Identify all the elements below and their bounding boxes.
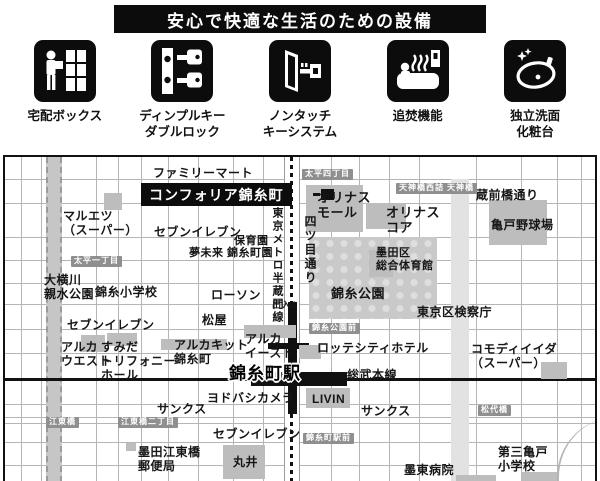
map-badge-label: 錦糸公園前 [309,323,360,334]
map-place-label: コモディイイダ （スーパー） [471,342,557,370]
map-place-label: 東京区検察庁 [417,305,492,319]
map-vertical-label: 四ツ目通り [302,215,319,285]
building-block [126,443,136,451]
map-place-label: セブンイレブン [213,427,301,441]
amenity-label: 追焚機能 [359,109,477,125]
metro-line-dotted [290,157,293,304]
amenity-section: 安心で快適な生活のための設備 宅配ボックス [0,5,600,155]
amenity-dimple-key: ディンプルキー ダブルロック [124,40,242,140]
map-place-label: オリナス モール [317,190,371,221]
map-place-label: ローソン [211,288,261,302]
map-place-label: 丸井 [233,455,258,469]
map-place-label: 第三亀戸 小学校 [498,445,548,473]
map-place-label: ヨドバシカメラ [207,391,295,405]
reheating-icon [387,40,449,102]
road-line-vertical [557,157,558,481]
yokojikken-river-strip [451,179,469,481]
curved-road [557,417,597,481]
map-panel: コンフォリア錦糸町 錦糸町駅 ファミリーマートマルエツ （スーパー）セブンイレブ… [3,155,597,481]
road-line-horizontal [5,304,595,305]
map-place-label: 松屋 [202,313,227,327]
amenity-reheating: 追焚機能 [359,40,477,140]
metro-line-dotted [290,414,293,481]
map-place-label: 総武本線 [347,368,397,382]
map-place-label: 大横川 親水公園 [44,273,94,301]
washbasin-icon [504,40,566,102]
map-place-label: 亀戸野球場 [491,218,554,232]
section-title: 安心で快適な生活のための設備 [167,7,433,32]
building-block [521,472,557,481]
road-line-horizontal [5,423,595,424]
map-place-label: マルエツ （スーパー） [63,209,138,237]
map-badge-label: 江東橋二丁目 [118,417,178,428]
amenity-row: 宅配ボックス ディンプルキー ダブルロック [0,40,600,140]
road-line-horizontal [5,417,595,418]
map-place-label: 墨田区 総合体育館 [376,247,434,273]
map-badge-label: 錦糸町駅前 [303,433,354,444]
amenity-nontouch-key: ノンタッチ キーシステム [241,40,359,140]
map-place-label: 墨田江東橋 郵便局 [138,445,201,473]
building-block [104,193,122,210]
amenity-label: ノンタッチ キーシステム [241,109,359,140]
amenity-delivery-box: 宅配ボックス [6,40,124,140]
section-title-banner: 安心で快適な生活のための設備 [114,5,486,33]
map-place-label: オリナス コア [386,205,440,236]
map-badge-label: 太平四丁目 [302,169,353,180]
road-line-horizontal [5,179,595,180]
map-vertical-label: 東京メトロ半蔵門線 [269,207,285,324]
property-label-box: コンフォリア錦糸町 [141,183,292,206]
map-place-label: アルカ イースト [245,332,294,360]
map-place-label: サンクス [361,404,411,418]
map-place-label: 錦糸公園 [331,286,385,301]
map-badge-label: 太平一丁目 [71,256,122,267]
map-place-label: セブンイレブン [67,318,155,332]
amenity-label: 独立洗面 化粧台 [476,109,594,140]
map-badge-label: 天神橋 [444,183,477,194]
map-place-label: 錦糸小学校 [95,285,158,299]
map-badge-label: 松代橋 [478,405,511,416]
road-line-horizontal [5,442,595,443]
map-place-label: サンクス [157,402,207,416]
dimple-key-icon [151,40,213,102]
road-line-vertical [21,157,22,481]
amenity-label: ディンプルキー ダブルロック [124,109,242,140]
map-badge-label: 天神橋西詰 [396,183,447,194]
map-place-label: ロッテシティホテル [317,341,429,355]
nontouch-key-icon [269,40,331,102]
map-place-label: ファミリーマート [153,166,253,180]
amenity-label: 宅配ボックス [6,109,124,125]
delivery-box-icon [34,40,96,102]
property-name: コンフォリア錦糸町 [149,185,284,205]
map-place-label: 蔵前橋通り [476,188,539,202]
building-block [456,475,496,481]
map-badge-label: 江東橋 [46,417,79,428]
road-line-vertical [41,157,42,481]
map-place-label: すみだ トリフォニー ホール [101,340,176,382]
map-place-label: 墨東病院 [404,463,454,477]
ohyokogawa-park-strip [46,157,62,481]
map-place-label: セブンイレブン [154,225,242,239]
amenity-washbasin: 独立洗面 化粧台 [476,40,594,140]
map-place-label: LIVIN [312,392,345,406]
map-place-label: アルカキット 錦糸町 [174,338,249,366]
map-place-label: 夢未来 錦糸町園 [189,247,273,260]
